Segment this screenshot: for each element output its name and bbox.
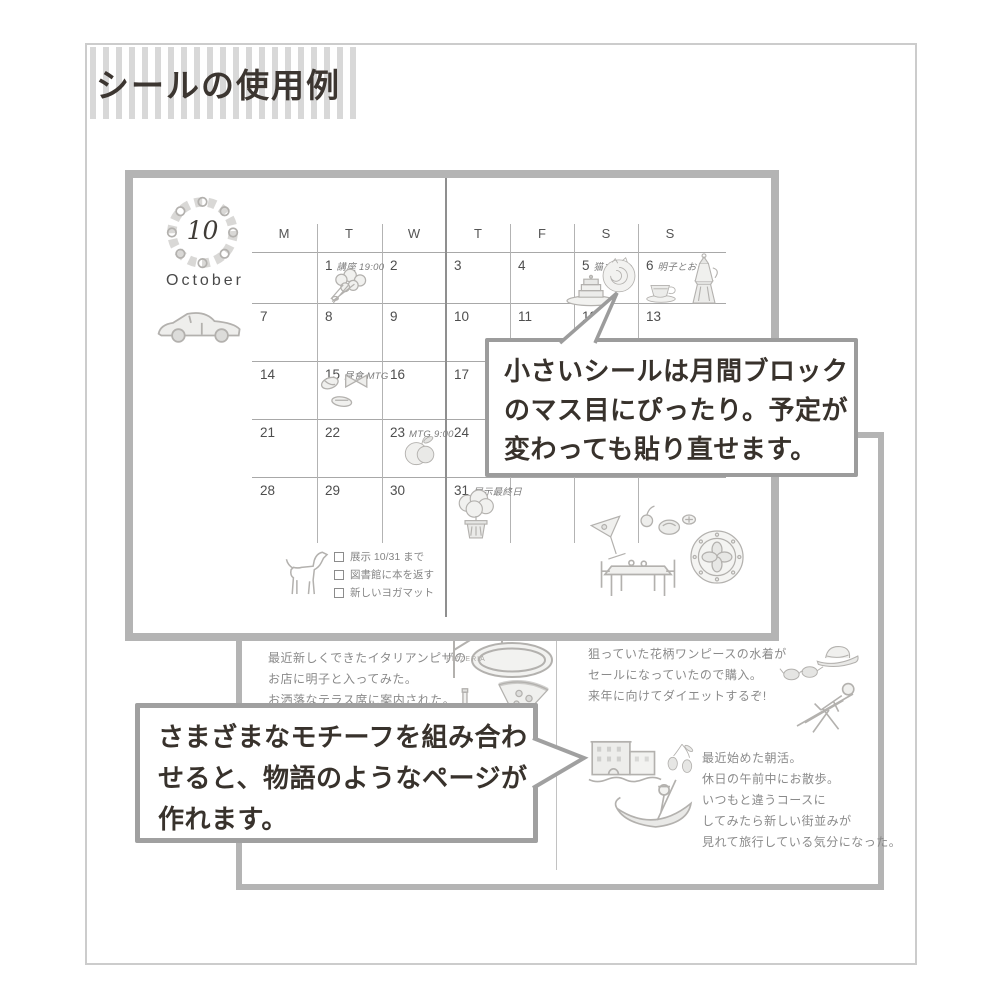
checklist-item: 図書館に本を返す [334,566,434,584]
checkbox-icon [334,588,344,598]
weekday-label: M [264,226,304,241]
straw-hat-sticker [810,640,862,672]
pizzeria-sign-label: PIZZERIA [436,656,496,663]
calendar-day: 7 [260,309,268,324]
text-line: 変わっても貼り直せます。 [504,430,854,469]
checklist-label: 図書館に本を返す [350,566,434,584]
calendar-day: 9 [390,309,398,324]
day-number: 11 [518,309,532,324]
moka-pot-sticker [682,250,726,310]
calendar-day: 11 [518,309,532,324]
month-number: 10 [185,216,220,245]
sports-car-sticker [155,298,245,346]
checklist-label: 新しいヨガマット [350,584,434,602]
weekday-label: T [458,226,498,241]
calendar-day: 28 [260,483,275,498]
title-band: シールの使用例 [90,47,363,119]
calendar-center-fold [445,178,447,617]
fruit-sticker [396,426,444,472]
callout-motif-combo-tail [529,726,591,794]
day-number: 17 [454,367,469,382]
calendar-day: 24 [454,425,469,440]
text-line: 小さいシールは月間ブロック [504,352,854,391]
calendar-day: 29 [325,483,340,498]
text-line: 来年に向けてダイエットするぞ! [588,686,787,707]
text-line: 狙っていた花柄ワンピースの水着が [588,644,787,665]
diary-note-morning: 最近始めた朝活。休日の午前中にお散歩。いつもと違うコースにしてみたら新しい街並み… [702,748,901,853]
flower-bouquet-sticker [316,264,378,308]
espresso-cup-sticker [640,270,682,306]
text-line: してみたら新しい街並みが [702,811,901,832]
calendar-day: 22 [325,425,340,440]
day-number: 28 [260,483,275,498]
cafe-table-sticker [594,543,682,601]
calendar-day: 3 [454,258,462,273]
checklist-item: 新しいヨガマット [334,584,434,602]
callout-small-stickers: 小さいシールは月間ブロックのマス目にぴったり。予定が変わっても貼り直せます。 [485,338,858,477]
month-name: October [155,272,255,290]
day-number: 3 [454,258,462,273]
calendar-day: 2 [390,258,398,273]
weekday-label: F [522,226,562,241]
weekday-label: S [586,226,626,241]
calendar-day: 13 [646,309,661,324]
day-number: 22 [325,425,340,440]
day-number: 4 [518,258,526,273]
day-number: 10 [454,309,469,324]
text-line: 見れて旅行している気分になった。 [702,832,901,853]
day-number: 30 [390,483,405,498]
gondola-sticker [612,776,696,840]
text-line: のマス目にぴったり。予定が [504,391,854,430]
decorative-plate-sticker [686,522,748,592]
page-title: シールの使用例 [90,59,341,107]
calendar-day: 21 [260,425,275,440]
product-usage-image: シールの使用例 最近新しくできたイタリアンピザのお店に明子と入ってみた。お洒落な… [0,0,1000,1000]
sunbathing-person-sticker [788,670,870,738]
weekday-label: S [650,226,690,241]
day-number: 2 [390,258,398,273]
calendar-day: 17 [454,367,469,382]
calendar-day: 10 [454,309,469,324]
weekday-label: W [394,226,434,241]
text-line: セールになっていたので購入。 [588,665,787,686]
checklist-item: 展示 10/31 まで [334,548,434,566]
grid-line [252,477,726,478]
day-number: 29 [325,483,340,498]
weekday-label: T [329,226,369,241]
text-line: さまざまなモチーフを組み合わ [158,717,533,758]
grid-line [252,252,726,253]
callout-motif-combo: さまざまなモチーフを組み合わせると、物語のようなページが作れます。 [135,703,538,843]
calendar-day: 30 [390,483,405,498]
day-number: 24 [454,425,469,440]
text-line: 最近始めた朝活。 [702,748,901,769]
potted-plant-sticker [450,486,502,546]
day-number: 9 [390,309,398,324]
dog-sticker [276,542,334,602]
calendar-day: 16 [390,367,405,382]
day-number: 7 [260,309,268,324]
calendar-day: 4 [518,258,526,273]
day-number: 21 [260,425,275,440]
calendar-day: 8 [325,309,333,324]
checkbox-icon [334,570,344,580]
todo-checklist: 展示 10/31 まで図書館に本を返す新しいヨガマット [334,548,434,602]
callout-small-stickers-tail [545,285,630,347]
checkbox-icon [334,552,344,562]
day-number: 13 [646,309,661,324]
pasta-sticker [314,370,380,412]
day-number: 16 [390,367,405,382]
text-line: お店に明子と入ってみた。 [268,669,467,690]
day-number: 14 [260,367,275,382]
text-line: 休日の午前中にお散歩。 [702,769,901,790]
text-line: 作れます。 [158,799,533,840]
diary-note-swimsuit: 狙っていた花柄ワンピースの水着がセールになっていたので購入。来年に向けてダイエッ… [588,644,787,707]
text-line: いつもと違うコースに [702,790,901,811]
text-line: せると、物語のようなページが [158,758,533,799]
calendar-day: 14 [260,367,275,382]
olives-sticker [660,740,704,778]
day-number: 8 [325,309,333,324]
checklist-label: 展示 10/31 まで [350,548,424,566]
